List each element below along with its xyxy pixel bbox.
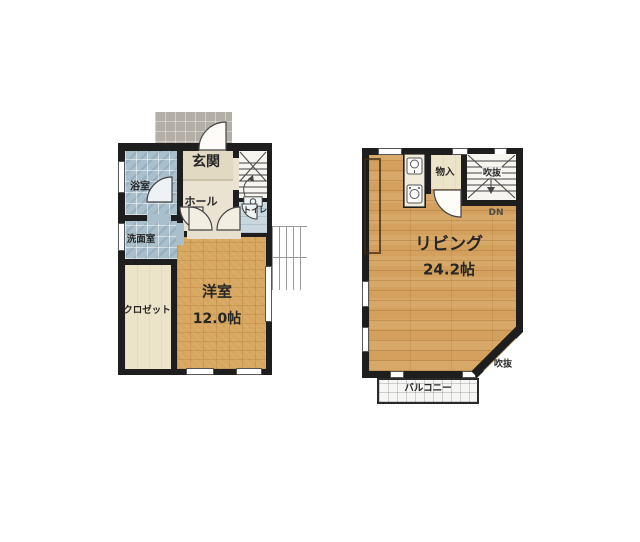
genkan-label: 玄関 [192, 151, 220, 171]
stairwell-wall-bottom [461, 200, 518, 206]
storage-label: 物入 [435, 164, 454, 178]
storage-door-arc [433, 189, 462, 218]
toilet-label: トイレ [243, 205, 267, 216]
living-size-label: 24.2帖 [423, 259, 475, 280]
bath-opening [147, 214, 171, 222]
window [362, 281, 369, 307]
corner-void-label: 吹抜 [494, 357, 512, 370]
staircase-1f-icon [239, 151, 267, 198]
window [452, 148, 468, 155]
window [265, 266, 272, 322]
front-door-arc [198, 119, 227, 151]
kitchen-counter-icon [403, 153, 426, 208]
deck-hatch [272, 226, 307, 290]
window [378, 148, 402, 155]
bedroom-room [177, 237, 266, 369]
window [236, 368, 262, 375]
washroom-label: 洗面室 [127, 231, 156, 245]
window [186, 368, 214, 375]
closet-room [125, 265, 171, 369]
window [362, 327, 369, 352]
hall-label: ホール [185, 193, 218, 209]
down-label: DN [488, 208, 503, 218]
floorplan-image: 玄関 浴室 ホール トイレ 洗面室 クロゼット 洋室 12.0帖 [0, 0, 640, 542]
window [390, 371, 404, 378]
living-label: リビング [415, 230, 483, 255]
balcony-label: バルコニー [404, 380, 451, 394]
deck-line [272, 257, 307, 258]
window [118, 161, 125, 193]
window [118, 223, 125, 251]
bedroom-size-label: 12.0帖 [193, 308, 242, 328]
counter-outline [364, 158, 381, 254]
stair-void-label: 吹抜 [482, 166, 502, 179]
closet-label: クロゼット [123, 302, 171, 316]
bedroom-door-right-arc [215, 205, 241, 231]
bath-label: 浴室 [130, 178, 150, 193]
bedroom-label: 洋室 [202, 281, 232, 302]
